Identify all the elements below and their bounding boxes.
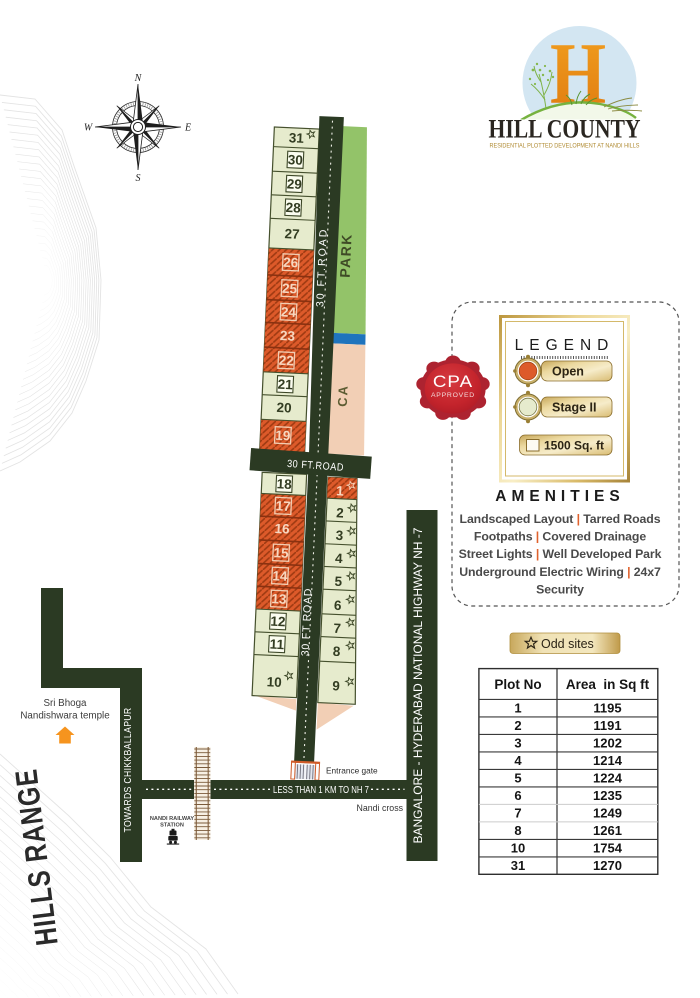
svg-text:AMENITIES: AMENITIES [495, 488, 624, 505]
svg-text:29: 29 [286, 176, 302, 192]
svg-text:20: 20 [276, 400, 292, 416]
svg-text:CPA: CPA [433, 372, 473, 391]
svg-text:Entrance gate: Entrance gate [326, 766, 378, 776]
svg-text:6: 6 [514, 788, 521, 803]
svg-text:CA: CA [335, 384, 351, 407]
svg-text:1: 1 [514, 701, 521, 716]
svg-text:3: 3 [514, 736, 521, 751]
svg-text:10: 10 [266, 674, 282, 690]
svg-text:8: 8 [333, 644, 342, 659]
svg-text:Plot No: Plot No [494, 677, 541, 692]
svg-text:18: 18 [276, 476, 292, 492]
svg-text:5: 5 [514, 771, 521, 786]
svg-text:Landscaped Layout | Tarred Roa: Landscaped Layout | Tarred Roads [460, 512, 661, 526]
svg-text:Stage II: Stage II [552, 401, 596, 415]
svg-text:Sri Bhoga: Sri Bhoga [43, 698, 87, 709]
svg-text:1224: 1224 [593, 771, 623, 786]
svg-text:Nandishwara temple: Nandishwara temple [20, 711, 110, 722]
svg-text:HILL COUNTY: HILL COUNTY [489, 115, 641, 144]
svg-text:1754: 1754 [593, 841, 623, 856]
svg-text:23: 23 [280, 328, 296, 344]
svg-text:12: 12 [270, 614, 286, 630]
svg-text:1214: 1214 [593, 753, 623, 768]
svg-text:13: 13 [271, 591, 287, 607]
svg-text:1261: 1261 [593, 823, 622, 838]
svg-text:26: 26 [283, 255, 299, 271]
svg-text:PARK: PARK [337, 233, 355, 278]
svg-text:15: 15 [273, 545, 289, 561]
svg-text:14: 14 [272, 568, 288, 584]
svg-text:31: 31 [511, 858, 525, 873]
svg-text:7: 7 [514, 806, 521, 821]
svg-text:8: 8 [514, 823, 521, 838]
svg-text:1202: 1202 [593, 736, 622, 751]
svg-text:Security: Security [536, 582, 584, 596]
svg-text:16: 16 [274, 521, 290, 537]
svg-text:BANGALORE - HYDERABAD NATIONAL: BANGALORE - HYDERABAD NATIONAL HIGHWAY N… [413, 528, 425, 844]
svg-text:1: 1 [336, 483, 345, 498]
svg-text:17: 17 [275, 498, 291, 514]
svg-text:Nandi cross: Nandi cross [357, 803, 404, 813]
svg-text:9: 9 [332, 678, 340, 693]
svg-text:STATION: STATION [160, 823, 184, 829]
svg-text:4: 4 [514, 753, 522, 768]
svg-text:4: 4 [335, 551, 344, 566]
svg-text:1195: 1195 [593, 701, 621, 716]
svg-text:1500 Sq. ft: 1500 Sq. ft [544, 439, 604, 453]
svg-text:RESIDENTIAL PLOTTED DEVELOPMEN: RESIDENTIAL PLOTTED DEVELOPMENT AT NANDI… [490, 143, 640, 150]
svg-text:10: 10 [511, 841, 525, 856]
svg-text:22: 22 [278, 353, 294, 369]
svg-text:Footpaths | Covered Drainage: Footpaths | Covered Drainage [474, 530, 646, 544]
svg-text:11: 11 [269, 637, 284, 653]
svg-text:19: 19 [275, 428, 291, 444]
svg-text:25: 25 [282, 281, 298, 297]
svg-text:2: 2 [336, 505, 344, 520]
svg-text:LEGEND: LEGEND [515, 337, 615, 354]
svg-text:N: N [134, 73, 143, 84]
svg-text:Underground Electric Wiring |: Underground Electric Wiring | 24x7 [459, 565, 661, 579]
svg-text:1235: 1235 [593, 788, 622, 803]
svg-text:1249: 1249 [593, 806, 622, 821]
svg-text:28: 28 [285, 200, 301, 216]
svg-text:3: 3 [335, 528, 344, 543]
svg-text:1191: 1191 [593, 718, 621, 733]
svg-text:6: 6 [334, 598, 343, 613]
svg-text:S: S [136, 173, 141, 184]
svg-text:APPROVED: APPROVED [431, 392, 475, 399]
svg-text:21: 21 [277, 377, 293, 393]
svg-text:Street Lights | Well Developed: Street Lights | Well Developed Park [459, 547, 662, 561]
svg-text:2: 2 [514, 718, 521, 733]
svg-text:5: 5 [334, 574, 343, 589]
svg-text:24: 24 [281, 304, 297, 320]
svg-text:NANDI RAILWAY: NANDI RAILWAY [150, 816, 195, 822]
svg-text:27: 27 [284, 226, 300, 242]
svg-text:31: 31 [289, 130, 305, 146]
svg-text:Area in Sq ft: Area in Sq ft [566, 677, 650, 692]
svg-text:TOWARDS CHIKKBALLAPUR: TOWARDS CHIKKBALLAPUR [122, 707, 134, 832]
svg-text:Odd sites: Odd sites [541, 637, 594, 651]
svg-text:Open: Open [552, 365, 584, 379]
svg-text:7: 7 [333, 621, 341, 636]
svg-text:30: 30 [288, 152, 304, 168]
svg-text:E: E [184, 123, 191, 134]
svg-text:LESS THAN 1 KM TO NH 7: LESS THAN 1 KM TO NH 7 [273, 785, 369, 796]
svg-text:1270: 1270 [593, 858, 622, 873]
